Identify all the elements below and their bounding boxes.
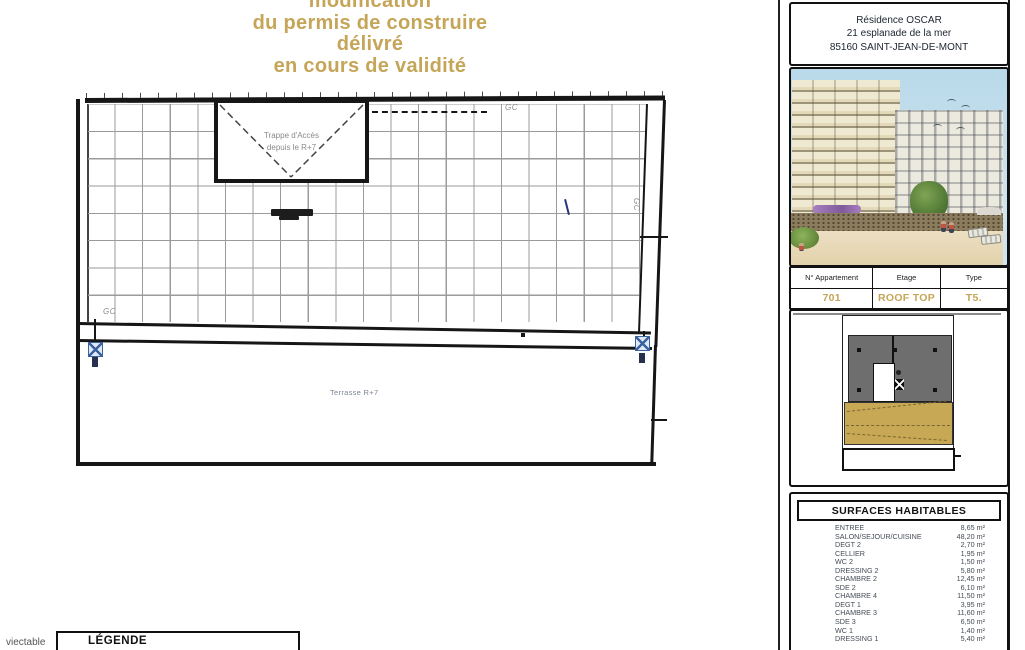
permit-title-line: délivré (95, 34, 645, 56)
hidden-edge-dashed-line (372, 111, 487, 113)
thumb-wall-line (892, 336, 894, 366)
plan-right-outer-wall (654, 100, 666, 347)
residence-name: Résidence OSCAR (791, 14, 1007, 28)
apartment-type: T5. (941, 289, 1007, 309)
bird-icon (933, 124, 942, 130)
thumb-hatch-opening (873, 363, 895, 402)
permit-title: modification du permis de construire dél… (95, 0, 645, 77)
thumb-lower-terrace (842, 448, 955, 471)
surfaces-title: SURFACES HABITABLES (797, 500, 1001, 521)
legend-partial-text: viectable (6, 637, 45, 648)
surfaces-box: SURFACES HABITABLES ENTREE8,65 m²SALON/S… (789, 492, 1009, 650)
bird-icon (961, 105, 970, 111)
sheet-divider (778, 0, 780, 650)
permit-title-line: en cours de validité (95, 56, 645, 78)
header-apartment-number: N° Appartement (791, 268, 873, 288)
illegible-label-blob (279, 216, 299, 220)
wall-tick (94, 319, 96, 342)
legend-title: LÉGENDE (88, 635, 147, 647)
address-block: Résidence OSCAR 21 esplanade de la mer 8… (789, 2, 1009, 66)
photo-building-left (792, 80, 900, 215)
photo-bush (789, 227, 819, 249)
surface-row: DRESSING 15,40 m² (835, 635, 985, 644)
thumb-vent-icon (895, 379, 904, 390)
thumb-tick (953, 455, 961, 457)
residence-city: 85160 SAINT-JEAN-DE-MONT (791, 41, 1007, 55)
thumb-vent-circle (896, 370, 901, 375)
hatch-label: depuis le R+7 (218, 143, 365, 152)
terrace-right-tick (651, 419, 667, 421)
terrace-wall-line (78, 322, 651, 334)
illegible-label-blob (271, 209, 313, 216)
terrace-right-wall (650, 345, 657, 466)
thumb-terrace-dash (846, 425, 950, 426)
roof-access-hatch: Trappe d'Accès depuis le R+7 (214, 99, 369, 183)
apartment-table: N° Appartement Etage Type 701 ROOF TOP T… (789, 266, 1009, 310)
thumb-column (893, 348, 897, 352)
room-name: DRESSING 1 (835, 635, 879, 644)
survey-marker-icon (635, 336, 650, 351)
room-area: 5,40 m² (961, 635, 985, 644)
marker-glyph (92, 357, 98, 367)
thumb-terrace-dash (847, 401, 947, 412)
photo-person (949, 222, 954, 233)
apartment-number: 701 (791, 289, 873, 309)
thumb-apartment-block (848, 335, 952, 402)
gc-annotation: GC (632, 198, 641, 211)
apartment-table-header-row: N° Appartement Etage Type (791, 268, 1007, 289)
permit-title-line: modification (95, 0, 645, 13)
residence-street: 21 esplanade de la mer (791, 27, 1007, 41)
photo-person (799, 243, 804, 251)
thumb-column (933, 388, 937, 392)
terrace-label: Terrasse R+7 (330, 388, 378, 397)
terrace-bottom-wall (77, 462, 656, 466)
plan-left-wall (76, 99, 80, 466)
thumb-column (857, 388, 861, 392)
surfaces-list: ENTREE8,65 m²SALON/SEJOUR/CUISINE48,20 m… (835, 524, 985, 644)
apartment-table-value-row: 701 ROOF TOP T5. (791, 289, 1007, 309)
survey-marker-icon (88, 342, 103, 357)
apartment-floor: ROOF TOP (873, 289, 940, 309)
bird-icon (947, 99, 956, 105)
thumb-column (857, 348, 861, 352)
photo-person (941, 221, 946, 232)
gc-annotation: GC (505, 103, 518, 112)
header-type: Type (941, 268, 1007, 288)
permit-title-line: du permis de construire (95, 13, 645, 35)
terrace-wall-line (78, 339, 652, 350)
bird-icon (956, 127, 965, 133)
thumb-column (933, 348, 937, 352)
photo-parasol (977, 207, 1001, 215)
hatch-diagonals-icon (218, 103, 365, 179)
header-floor: Etage (873, 268, 940, 288)
thumb-terrace-highlight (844, 402, 953, 445)
thumb-terrace-dash (847, 433, 947, 441)
location-thumbnail (789, 309, 1009, 487)
marker-glyph (639, 353, 645, 363)
plan-sheet: modification du permis de construire dél… (0, 0, 1025, 650)
gc-annotation: GC (103, 307, 116, 316)
residence-photo (789, 67, 1009, 267)
hatch-label: Trappe d'Accès (218, 131, 365, 140)
wall-post-dot (521, 333, 525, 337)
right-wall-tick (640, 236, 668, 238)
